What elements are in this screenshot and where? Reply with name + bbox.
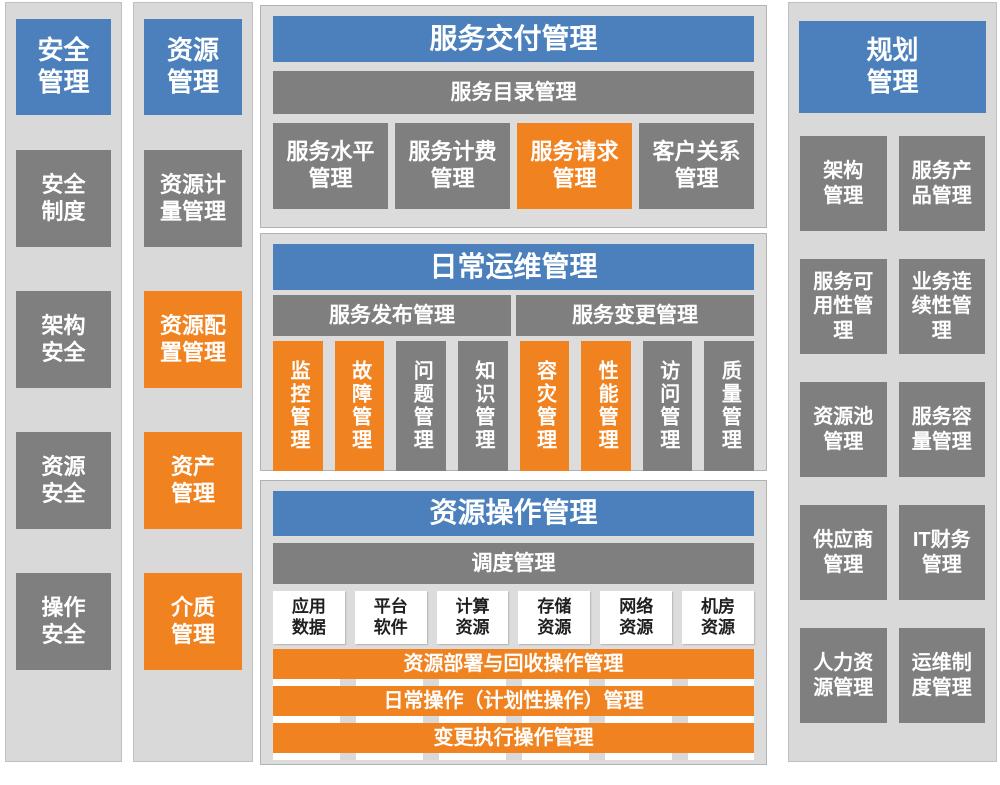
- security-management-column: 安全 管理 安全 制度 架构 安全 资源 安全 操作 安全: [5, 2, 122, 762]
- box-service-billing: 服务计费 管理: [395, 123, 510, 209]
- box-service-level: 服务水平 管理: [273, 123, 388, 209]
- box-service-availability-management: 服务可 用性管 理: [800, 259, 887, 354]
- planning-management-header: 规划 管理: [799, 21, 986, 113]
- bar-change-execution-operations: 变更执行操作管理: [273, 723, 754, 753]
- service-delivery-panel: 服务交付管理 服务目录管理 服务水平 管理 服务计费 管理 服务请求 管理 客户…: [260, 5, 767, 228]
- itsm-framework-diagram: 安全 管理 安全 制度 架构 安全 资源 安全 操作 安全 资源 管理 资源计 …: [0, 0, 1000, 785]
- planning-box-grid: 架构 管理 服务产 品管理 服务可 用性管 理 业务连 续性管 理 资源池 管理…: [800, 136, 985, 723]
- box-it-finance-management: IT财务 管理: [899, 505, 986, 600]
- bar-service-change: 服务变更管理: [516, 295, 754, 336]
- box-architecture-security: 架构 安全: [16, 291, 111, 388]
- security-management-header: 安全 管理: [16, 19, 111, 115]
- box-media-management: 介质 管理: [144, 573, 242, 670]
- box-service-capacity-management: 服务容 量管理: [899, 382, 986, 477]
- box-business-continuity-management: 业务连 续性管 理: [899, 259, 986, 354]
- box-performance-label: 性能管理: [594, 360, 618, 452]
- box-architecture-management: 架构 管理: [800, 136, 887, 231]
- box-resource-security: 资源 安全: [16, 432, 111, 529]
- box-monitoring: 监控管理: [273, 341, 323, 471]
- resource-management-column: 资源 管理 资源计 量管理 资源配 置管理 资产 管理 介质 管理: [133, 2, 253, 762]
- bar-service-catalog: 服务目录管理: [273, 71, 754, 114]
- box-quality-label: 质量管理: [717, 360, 741, 452]
- box-performance: 性能管理: [581, 341, 631, 471]
- resource-management-header: 资源 管理: [144, 19, 242, 115]
- service-delivery-box-row: 服务水平 管理 服务计费 管理 服务请求 管理 客户关系 管理: [273, 123, 754, 209]
- box-problem-label: 问题管理: [409, 360, 433, 452]
- box-compute-resource: 计算 资源: [437, 591, 509, 644]
- box-customer-relationship: 客户关系 管理: [639, 123, 754, 209]
- box-storage-resource: 存储 资源: [518, 591, 590, 644]
- box-knowledge: 知识管理: [458, 341, 508, 471]
- box-asset-management: 资产 管理: [144, 432, 242, 529]
- separator-dash-row: [273, 716, 754, 723]
- service-delivery-header: 服务交付管理: [273, 16, 754, 62]
- box-human-resource-management: 人力资 源管理: [800, 628, 887, 723]
- box-service-request: 服务请求 管理: [517, 123, 632, 209]
- daily-operations-panel: 日常运维管理 服务发布管理 服务变更管理 监控管理 故障管理 问题管理 知识管理…: [260, 233, 767, 471]
- box-knowledge-label: 知识管理: [470, 360, 494, 452]
- planning-management-column: 规划 管理 架构 管理 服务产 品管理 服务可 用性管 理 业务连 续性管 理 …: [788, 2, 997, 762]
- box-security-policy: 安全 制度: [16, 150, 111, 247]
- box-disaster-recovery-label: 容灾管理: [532, 360, 556, 452]
- bar-daily-planned-operations: 日常操作（计划性操作）管理: [273, 686, 754, 716]
- box-incident: 故障管理: [335, 341, 385, 471]
- box-datacenter-resource: 机房 资源: [682, 591, 754, 644]
- box-application-data: 应用 数据: [273, 591, 345, 644]
- daily-operations-box-row: 监控管理 故障管理 问题管理 知识管理 容灾管理 性能管理 访问管理 质量管理: [273, 341, 754, 471]
- box-quality: 质量管理: [704, 341, 754, 471]
- bar-deploy-reclaim-operations: 资源部署与回收操作管理: [273, 649, 754, 679]
- box-supplier-management: 供应商 管理: [800, 505, 887, 600]
- box-operation-security: 操作 安全: [16, 573, 111, 670]
- resource-type-box-row: 应用 数据 平台 软件 计算 资源 存储 资源 网络 资源 机房 资源: [273, 591, 754, 644]
- resource-operations-panel: 资源操作管理 调度管理 应用 数据 平台 软件 计算 资源 存储 资源 网络 资…: [260, 480, 767, 765]
- bar-service-release: 服务发布管理: [273, 295, 511, 336]
- box-incident-label: 故障管理: [347, 360, 371, 452]
- box-disaster-recovery: 容灾管理: [520, 341, 570, 471]
- daily-operations-header: 日常运维管理: [273, 244, 754, 290]
- box-access-label: 访问管理: [655, 360, 679, 452]
- box-resource-configuration: 资源配 置管理: [144, 291, 242, 388]
- box-resource-metering: 资源计 量管理: [144, 150, 242, 247]
- box-ops-policy-management: 运维制 度管理: [899, 628, 986, 723]
- box-monitoring-label: 监控管理: [286, 360, 310, 452]
- resource-operations-header: 资源操作管理: [273, 491, 754, 536]
- box-resource-pool-management: 资源池 管理: [800, 382, 887, 477]
- bar-scheduling: 调度管理: [273, 543, 754, 584]
- separator-dash-row: [273, 679, 754, 686]
- box-access: 访问管理: [643, 341, 693, 471]
- box-platform-software: 平台 软件: [355, 591, 427, 644]
- daily-operations-bar-row: 服务发布管理 服务变更管理: [273, 295, 754, 336]
- box-network-resource: 网络 资源: [600, 591, 672, 644]
- separator-dash-row: [273, 753, 754, 760]
- box-service-product-management: 服务产 品管理: [899, 136, 986, 231]
- box-problem: 问题管理: [396, 341, 446, 471]
